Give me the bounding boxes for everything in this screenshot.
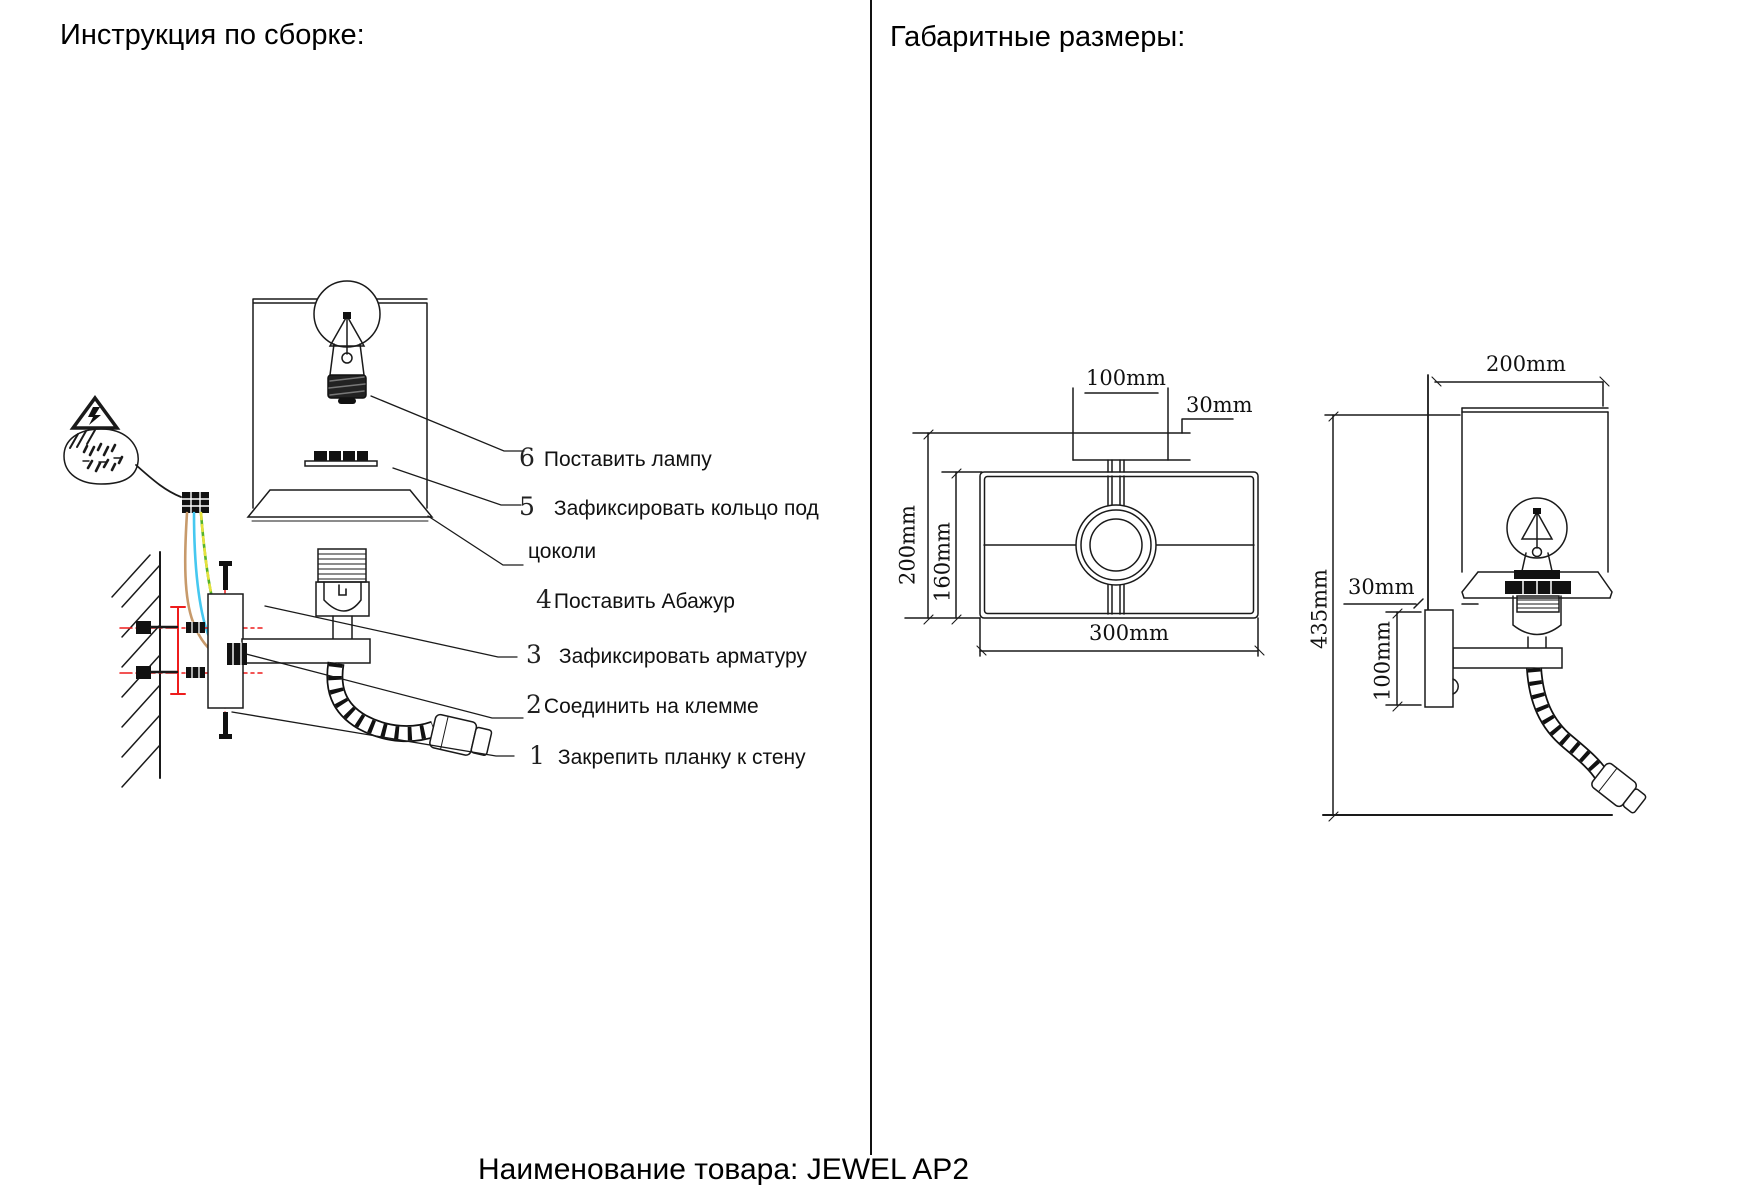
plate-screw-top [219,561,232,590]
step-label: Поставить Абажур [554,590,735,614]
switch-bump [1453,679,1458,694]
assembly-step-5: 5 Зафиксировать кольцо под [519,492,819,521]
dim-side-depth: 200mm [1486,353,1566,376]
wall-screws [136,621,205,679]
front-view-diagram [905,388,1264,656]
leader-5 [393,468,521,505]
assembly-step-1: 1 Закрепить планку к стену [529,741,806,770]
step-number: 4 [536,585,552,614]
bulb-icon [314,281,380,404]
step-label: Зафиксировать арматуру [559,645,807,669]
right-section-title: Габаритные размеры: [890,22,1185,54]
callout-tail [136,465,181,497]
dim-line-30-side [1344,599,1478,608]
assembly-step-6: 6 Поставить лампу [519,443,712,472]
socket-side [1505,570,1571,648]
instruction-sheet: Инструкция по сборке: Габаритные размеры… [0,0,1740,1200]
dim-front-top-width: 100mm [1086,367,1166,390]
dim-side-plate-depth: 30mm [1348,576,1415,599]
terminal-clamp [227,643,247,665]
dim-front-plate-height: 30mm [1186,394,1253,417]
step-number: 3 [526,640,542,669]
stem [1108,460,1124,472]
step-label: Соединить на клемме [544,695,759,719]
leader-4 [428,516,523,565]
dim-side-total-height: 435mm [1308,569,1331,649]
step-number: 6 [519,443,535,472]
step-label: Зафиксировать кольцо под [554,497,819,521]
wall-plate-side [1425,610,1453,707]
reading-light-head [429,714,493,760]
dim-front-total-width: 300mm [1089,622,1169,645]
product-caption: Наименование товара: JEWEL AP2 [478,1153,969,1186]
gooseneck-side [1534,668,1649,817]
step-number: 1 [529,741,545,770]
wiring-detail-balloon [64,429,138,484]
assembly-step-5-line2: цоколи [528,540,596,564]
dim-front-shade-height: 160mm [931,522,954,602]
assembly-step-2: 2 Соединить на клемме [526,690,759,719]
dim-front-total-height: 200mm [896,505,919,585]
shade-ring [248,490,432,517]
section-divider [870,0,872,1155]
side-dimensions [1323,412,1612,821]
left-section-title: Инструкция по сборке: [60,20,365,52]
shade-front [980,472,1258,618]
gooseneck-flex-arm [335,663,493,760]
step-label: Поставить лампу [544,448,712,472]
arm-side [1453,648,1562,668]
warning-callout [64,398,181,497]
bulb-side-icon [1507,498,1567,571]
assembly-diagram [64,281,524,787]
step-number: 2 [526,690,542,719]
leader-lines [232,396,524,756]
dim-side-plate-height: 100mm [1371,621,1394,701]
ceiling-plate [1073,433,1168,460]
assembly-step-3: 3 Зафиксировать арматуру [526,640,807,669]
socket-bar [305,451,377,466]
assembly-step-4: 4 Поставить Абажур [536,585,735,614]
plate-screw-bottom [219,712,232,739]
high-voltage-warning-icon [73,398,117,428]
step-label: Закрепить планку к стену [558,746,806,770]
terminal-block [182,492,209,513]
step-number: 5 [519,492,535,521]
wall-arm [227,639,370,665]
bulb-screw-base [328,375,366,404]
leader-6 [371,396,524,451]
dim-bracket-30 [1182,419,1233,433]
